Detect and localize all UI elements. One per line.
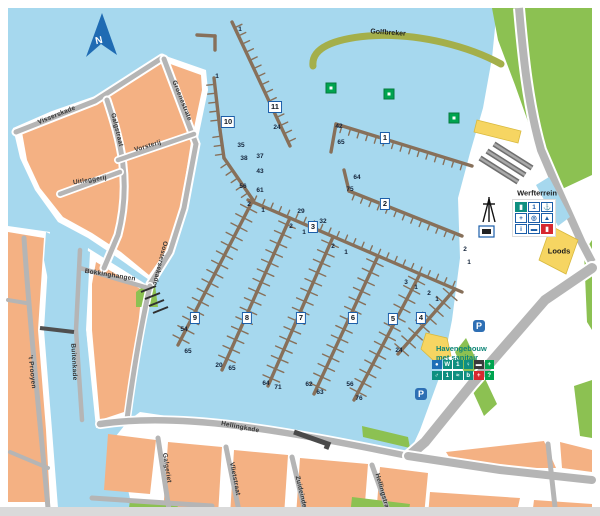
pier-label-8: 8 bbox=[242, 312, 252, 324]
berth-number: 29 bbox=[297, 209, 304, 216]
berth-number: 1 bbox=[344, 250, 348, 257]
toilet-men-icon: ♂ bbox=[432, 371, 442, 380]
pier-label-10: 10 bbox=[221, 116, 235, 128]
parking-icon: P bbox=[473, 320, 485, 332]
berth-number: 61 bbox=[256, 188, 263, 195]
pier-label-2: 2 bbox=[380, 198, 390, 210]
buoy-dot bbox=[452, 116, 455, 119]
werfterrein-label: Werfterrein bbox=[517, 189, 557, 197]
buoy-dot bbox=[329, 86, 332, 89]
pier-label-5: 5 bbox=[388, 313, 398, 325]
berth-number: 2 bbox=[331, 244, 335, 251]
berth-number: 35 bbox=[237, 143, 244, 150]
berth-number: 54 bbox=[180, 327, 187, 334]
berth-number: 2 bbox=[427, 291, 431, 298]
pier-label-1: 1 bbox=[380, 132, 390, 144]
berth-number: 2 bbox=[463, 247, 467, 254]
slipway-icon: ▲ bbox=[541, 213, 553, 223]
berth-number: 71 bbox=[274, 385, 281, 392]
laundry-icon: ▬ bbox=[474, 360, 484, 369]
fuel-icon: ▮ bbox=[541, 224, 553, 234]
berth-number: 1 bbox=[302, 230, 306, 237]
berth-number: 65 bbox=[337, 140, 344, 147]
info-point-icon: ? bbox=[485, 371, 495, 380]
berth-number: 75 bbox=[346, 187, 353, 194]
loods-label: Loods bbox=[548, 247, 571, 255]
berth-number: 76 bbox=[355, 396, 362, 403]
boat-lift-icon bbox=[479, 226, 494, 237]
buoy-marker-icon bbox=[326, 83, 337, 94]
water-icon: ≈ bbox=[453, 371, 463, 380]
berth-number: 63 bbox=[316, 390, 323, 397]
washstand-icon: 1 bbox=[443, 371, 453, 380]
berth-number: 1 bbox=[467, 260, 471, 267]
berth-number: 3 bbox=[404, 280, 408, 287]
parking-icon: P bbox=[415, 388, 427, 400]
defibrillator-icon: + bbox=[474, 371, 484, 380]
basemap-svg bbox=[0, 0, 600, 516]
page-edge bbox=[0, 507, 600, 516]
berth-number: 64 bbox=[262, 381, 269, 388]
street-label: Buitenkade bbox=[69, 343, 77, 380]
toilet-women-icon: ♀ bbox=[464, 360, 474, 369]
berth-number: 1 bbox=[215, 74, 219, 81]
berth-number: 24 bbox=[273, 125, 280, 132]
shower-icon: 1 bbox=[453, 360, 463, 369]
berth-number: 56 bbox=[239, 184, 246, 191]
pier-label-7: 7 bbox=[296, 312, 306, 324]
buoy-marker-icon bbox=[449, 113, 460, 124]
berth-number: 32 bbox=[319, 219, 326, 226]
pier-label-9: 9 bbox=[190, 312, 200, 324]
service-icon: + bbox=[515, 213, 527, 223]
berth-number: 65 bbox=[228, 366, 235, 373]
berth-number: 64 bbox=[353, 175, 360, 182]
buoy-dot bbox=[387, 92, 390, 95]
berth-number: 1 bbox=[261, 208, 265, 215]
berth-number: 65 bbox=[184, 349, 191, 356]
winch-icon: ◎ bbox=[528, 213, 540, 223]
harbour-facility-icons-row1: ●W1♀▬+ bbox=[432, 360, 494, 369]
harbour-office-label-line1: Havengebouw bbox=[436, 344, 487, 353]
marina-map: Golfbreker Werfterrein Loods Havengebouw… bbox=[0, 0, 600, 516]
berth-number: 20 bbox=[215, 363, 222, 370]
info-icon: i bbox=[515, 224, 527, 234]
berth-number: 43 bbox=[256, 169, 263, 176]
berth-number: 1 bbox=[435, 297, 439, 304]
harbour-facility-icons-row2: ♂1≈b+? bbox=[432, 371, 494, 380]
pier-label-11: 11 bbox=[268, 101, 282, 113]
berth-number: 24 bbox=[395, 348, 402, 355]
wc-icon: W bbox=[443, 360, 453, 369]
crane-icon: 1 bbox=[528, 202, 540, 212]
berth-number: 1 bbox=[414, 285, 418, 292]
berth-number: 2 bbox=[289, 224, 293, 231]
berth-number: 56 bbox=[346, 382, 353, 389]
dishwash-icon: b bbox=[464, 371, 474, 380]
berth-number: 1 bbox=[238, 27, 242, 34]
boat-trailer-icon: ▬ bbox=[528, 224, 540, 234]
berth-number: 2 bbox=[247, 202, 251, 209]
pier-label-3: 3 bbox=[308, 221, 318, 233]
anchor-icon: ⚓ bbox=[541, 202, 553, 212]
first-aid-icon: + bbox=[485, 360, 495, 369]
berth-number: 38 bbox=[240, 156, 247, 163]
berth-number: 42 bbox=[335, 124, 342, 131]
pier-label-6: 6 bbox=[348, 312, 358, 324]
berth-number: 62 bbox=[305, 382, 312, 389]
hoist-icon: ▮ bbox=[515, 202, 527, 212]
werf-facility-icons: ▮1⚓+◎▲i▬▮ bbox=[512, 199, 556, 237]
berth-number: 37 bbox=[256, 154, 263, 161]
pier-label-4: 4 bbox=[416, 312, 426, 324]
wifi-icon: ● bbox=[432, 360, 442, 369]
buoy-marker-icon bbox=[384, 89, 395, 100]
